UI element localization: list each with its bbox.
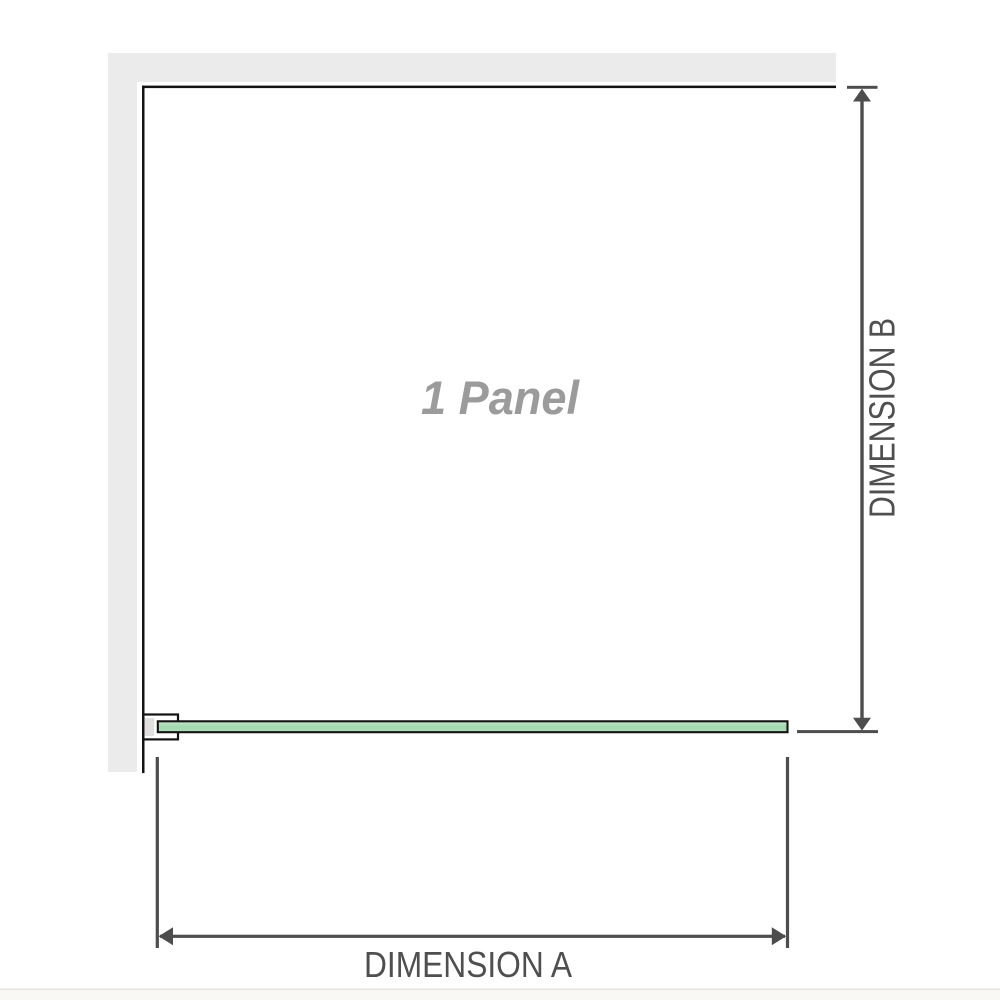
svg-text:DIMENSION B: DIMENSION B	[862, 318, 903, 518]
svg-text:DIMENSION A: DIMENSION A	[364, 944, 572, 985]
svg-text:1 Panel: 1 Panel	[421, 371, 580, 424]
